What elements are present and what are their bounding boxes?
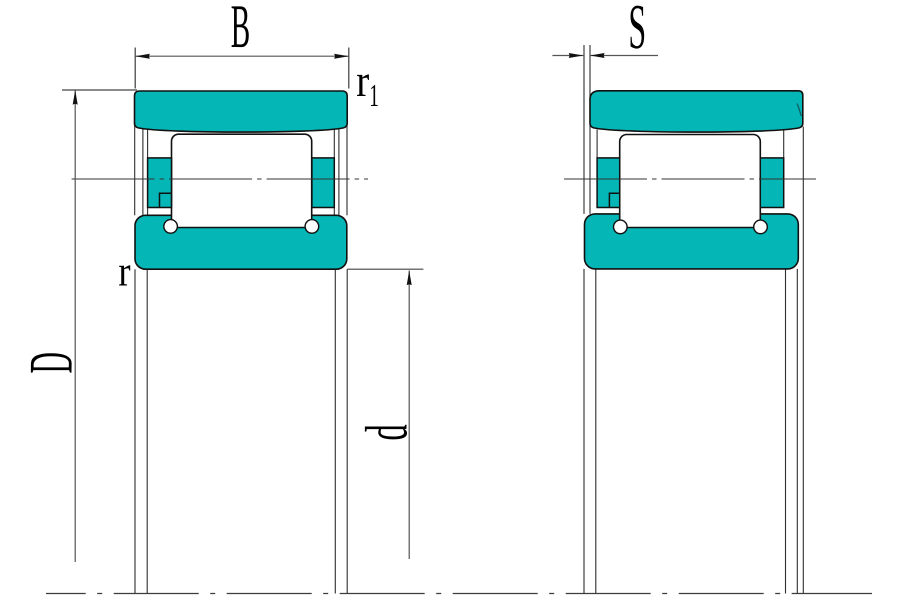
svg-text:r: r: [356, 55, 369, 106]
svg-text:D: D: [18, 352, 86, 373]
svg-text:S: S: [628, 0, 646, 62]
svg-text:B: B: [231, 0, 250, 61]
svg-text:1: 1: [369, 77, 379, 113]
svg-text:d: d: [354, 424, 420, 440]
svg-text:r: r: [118, 248, 130, 295]
